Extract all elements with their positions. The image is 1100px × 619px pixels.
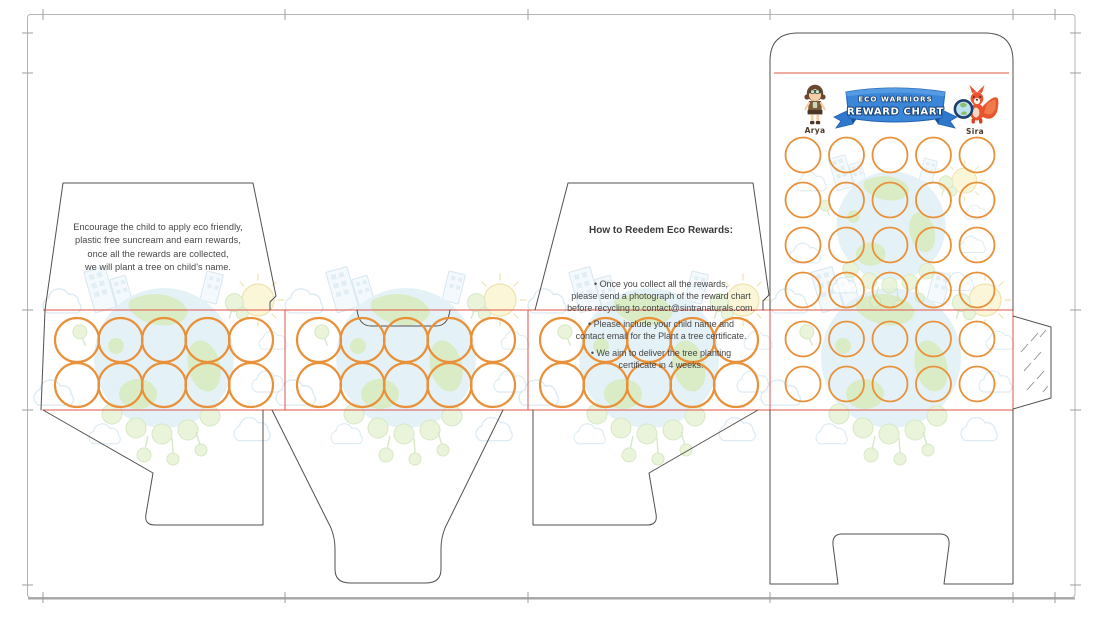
redeem-bullet: • Once you collect all the rewards, plea… (567, 279, 755, 314)
reward-circle (786, 367, 821, 402)
glue-flap-hatching (1021, 330, 1048, 392)
redeem-heading: How to Reedem Eco Rewards: (567, 225, 755, 236)
reward-chart-banner: ECO WARRIORS REWARD CHART (834, 88, 957, 128)
redeem-bullet: • We aim to deliver the tree planting ce… (567, 348, 755, 372)
reward-circle (55, 318, 99, 362)
arya-label: Arya (805, 126, 826, 135)
sira-label: Sira (966, 127, 984, 136)
arya-character (804, 85, 825, 124)
reward-circle (297, 318, 341, 362)
packaging-dieline-canvas: ECO WARRIORS REWARD CHART Arya (0, 0, 1100, 619)
reward-circle (960, 138, 995, 173)
dieline-drawing: ECO WARRIORS REWARD CHART Arya (0, 0, 1100, 619)
redeem-panel: How to Reedem Eco Rewards: • Once you co… (567, 189, 755, 395)
left-flap-instructions: Encourage the child to apply eco friendl… (73, 221, 242, 275)
banner-line1: ECO WARRIORS (858, 95, 933, 104)
reward-circle (873, 138, 908, 173)
reward-circle (786, 138, 821, 173)
background-illustrations (34, 151, 1014, 465)
banner-line2: REWARD CHART (847, 107, 944, 118)
sira-character (955, 85, 998, 124)
redeem-bullet: • Please include your child name and con… (567, 319, 755, 343)
redeem-bullets: • Once you collect all the rewards, plea… (567, 279, 755, 372)
